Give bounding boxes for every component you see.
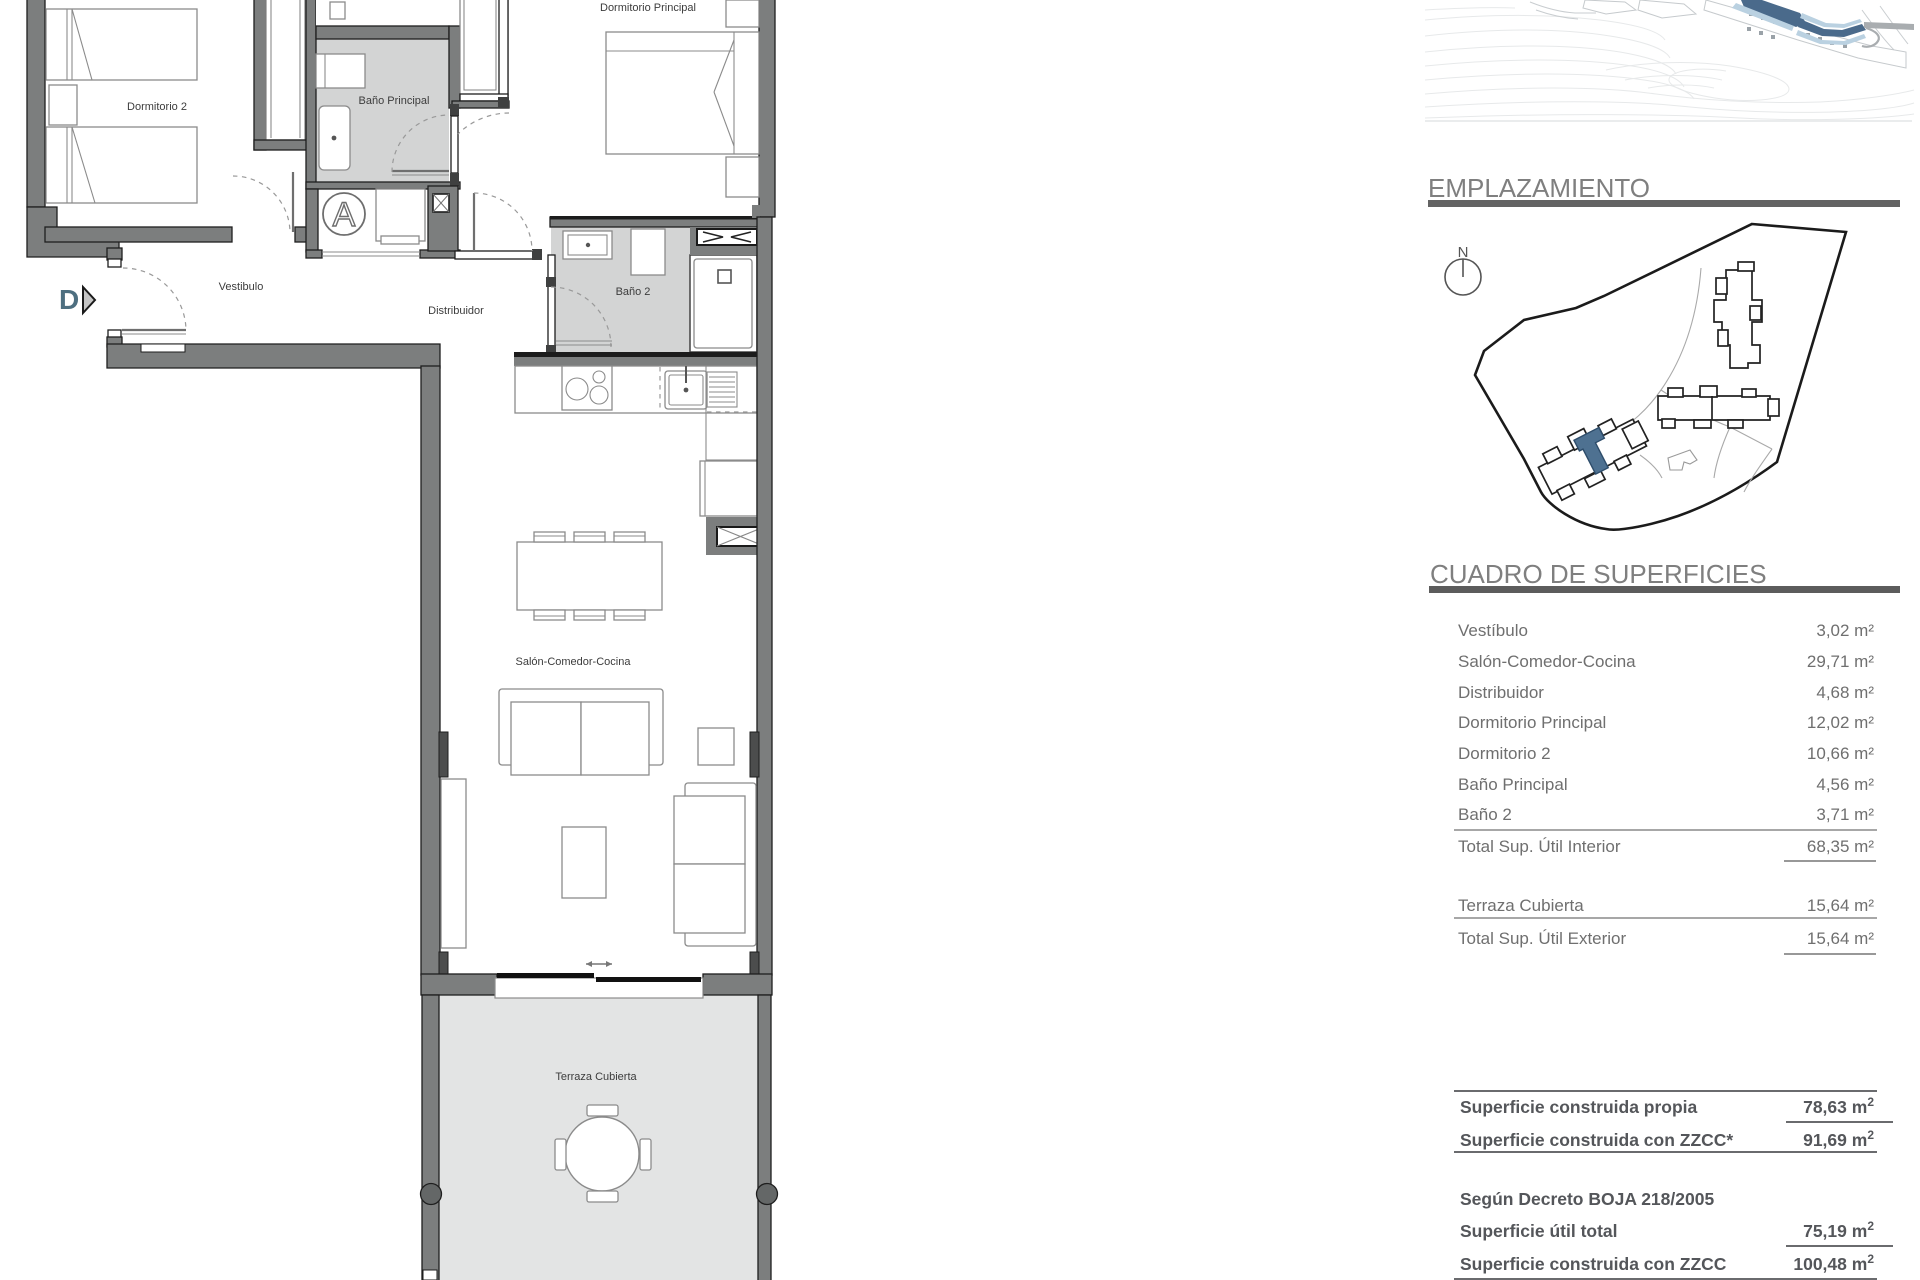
svg-text:68,35 m²: 68,35 m² xyxy=(1807,837,1874,856)
svg-text:Superficie construida con ZZCC: Superficie construida con ZZCC xyxy=(1460,1254,1727,1274)
svg-text:Superficie construida propia: Superficie construida propia xyxy=(1460,1097,1698,1117)
svg-text:D: D xyxy=(59,284,79,315)
svg-text:Vestibulo: Vestibulo xyxy=(219,281,264,293)
svg-text:Vestíbulo: Vestíbulo xyxy=(1458,621,1528,640)
svg-text:Total Sup. Útil Exterior: Total Sup. Útil Exterior xyxy=(1458,929,1627,948)
svg-text:Superficie útil total: Superficie útil total xyxy=(1460,1221,1618,1241)
svg-text:Dormitorio Principal: Dormitorio Principal xyxy=(1458,713,1606,732)
svg-text:Distribuidor: Distribuidor xyxy=(1458,683,1544,702)
svg-text:75,19 m2: 75,19 m2 xyxy=(1803,1219,1874,1241)
svg-text:3,71 m²: 3,71 m² xyxy=(1816,805,1874,824)
svg-text:100,48 m2: 100,48 m2 xyxy=(1793,1252,1874,1274)
svg-text:29,71 m²: 29,71 m² xyxy=(1807,652,1874,671)
svg-text:Dormitorio 2: Dormitorio 2 xyxy=(127,101,187,113)
svg-text:Distribuidor: Distribuidor xyxy=(428,305,484,317)
svg-text:15,64 m²: 15,64 m² xyxy=(1807,929,1874,948)
svg-text:4,56 m²: 4,56 m² xyxy=(1816,775,1874,794)
svg-text:CUADRO DE SUPERFICIES: CUADRO DE SUPERFICIES xyxy=(1430,559,1767,589)
svg-text:Baño 2: Baño 2 xyxy=(616,286,651,298)
svg-text:Terraza Cubierta: Terraza Cubierta xyxy=(555,1071,637,1083)
svg-text:12,02 m²: 12,02 m² xyxy=(1807,713,1874,732)
svg-text:15,64 m²: 15,64 m² xyxy=(1807,896,1874,915)
svg-text:Salón-Comedor-Cocina: Salón-Comedor-Cocina xyxy=(1458,652,1636,671)
svg-text:Salón-Comedor-Cocina: Salón-Comedor-Cocina xyxy=(516,656,632,668)
svg-text:4,68 m²: 4,68 m² xyxy=(1816,683,1874,702)
svg-text:A: A xyxy=(333,196,356,234)
svg-text:Terraza Cubierta: Terraza Cubierta xyxy=(1458,896,1584,915)
svg-text:Dormitorio 2: Dormitorio 2 xyxy=(1458,744,1551,763)
svg-text:Dormitorio Principal: Dormitorio Principal xyxy=(600,2,696,14)
svg-text:Baño Principal: Baño Principal xyxy=(359,95,430,107)
svg-text:Baño 2: Baño 2 xyxy=(1458,805,1512,824)
svg-text:10,66 m²: 10,66 m² xyxy=(1807,744,1874,763)
svg-text:91,69 m2: 91,69 m2 xyxy=(1803,1128,1874,1150)
svg-text:Según Decreto BOJA 218/2005: Según Decreto BOJA 218/2005 xyxy=(1460,1189,1714,1209)
svg-text:Baño Principal: Baño Principal xyxy=(1458,775,1568,794)
svg-text:Total Sup. Útil Interior: Total Sup. Útil Interior xyxy=(1458,837,1621,856)
svg-text:EMPLAZAMIENTO: EMPLAZAMIENTO xyxy=(1428,173,1650,203)
svg-text:3,02 m²: 3,02 m² xyxy=(1816,621,1874,640)
svg-text:78,63 m2: 78,63 m2 xyxy=(1803,1095,1874,1117)
svg-text:Superficie construida con ZZCC: Superficie construida con ZZCC* xyxy=(1460,1130,1733,1150)
